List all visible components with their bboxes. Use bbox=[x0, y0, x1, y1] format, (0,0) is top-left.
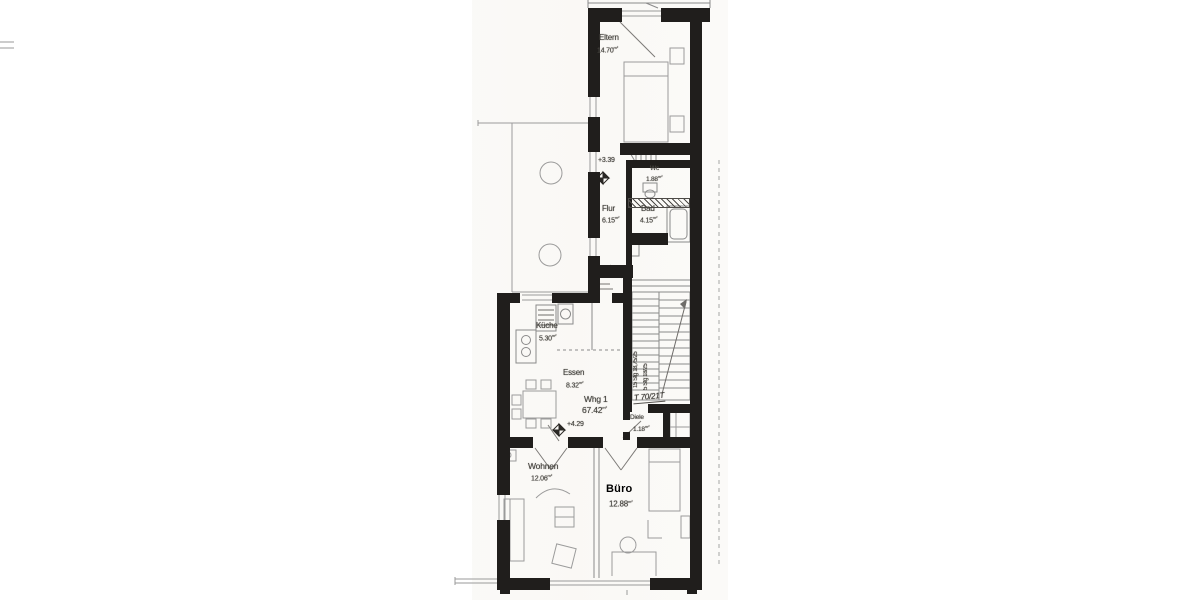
elevation-429: +4.29 bbox=[567, 421, 584, 428]
room-label-bad: Bad bbox=[641, 205, 655, 213]
dining-furniture bbox=[512, 380, 556, 428]
wall-segment bbox=[690, 8, 702, 590]
room-area-eltern: 14.70m² bbox=[597, 46, 618, 54]
hatched-wall bbox=[628, 198, 690, 208]
room-label-flur: Flur bbox=[602, 205, 615, 213]
wall-segment bbox=[623, 278, 632, 412]
wall-segment bbox=[595, 265, 633, 278]
elevation-339: +3.39 bbox=[598, 157, 615, 164]
eltern-furniture bbox=[624, 48, 684, 142]
room-label-kueche: Küche bbox=[536, 322, 558, 330]
room-area-diele: 1.18m² bbox=[633, 425, 650, 434]
room-divider bbox=[594, 448, 599, 578]
stair-note-main: 15 Stg 18,75/25 bbox=[633, 296, 639, 388]
wall-segment bbox=[497, 293, 510, 495]
floor-plan: Eltern 14.70m² Wc 1.88m² Flur 6.15m² Bad… bbox=[0, 0, 1200, 600]
apartment-area: 67.42m² bbox=[582, 406, 607, 415]
room-area-wohnen: 12.06m² bbox=[531, 474, 552, 482]
wall-segment bbox=[588, 172, 600, 238]
wall-segment bbox=[552, 293, 600, 303]
chimney-block bbox=[627, 233, 668, 245]
room-label-essen: Essen bbox=[563, 369, 584, 377]
wall-segment bbox=[637, 437, 690, 448]
wall-segment bbox=[497, 437, 533, 448]
wall-segment bbox=[612, 293, 623, 303]
wall-segment bbox=[623, 432, 630, 440]
wall-segment bbox=[623, 412, 630, 420]
room-area-kueche: 5.30m² bbox=[539, 334, 557, 342]
room-area-bad: 4.15m² bbox=[640, 216, 658, 224]
bath-fixtures bbox=[629, 183, 690, 256]
wall-segment bbox=[661, 8, 710, 22]
room-label-wc: Wc bbox=[650, 166, 659, 173]
wall-segment bbox=[568, 437, 603, 448]
room-label-diele: Diele bbox=[630, 415, 644, 422]
balcony-line bbox=[588, 0, 710, 8]
terrace-outline bbox=[478, 120, 588, 292]
wall-segment bbox=[500, 588, 510, 594]
room-label-buero: Büro bbox=[606, 484, 632, 495]
kitchen-fixtures bbox=[516, 303, 623, 363]
room-area-flur: 6.15m² bbox=[602, 216, 620, 224]
wall-segment bbox=[663, 412, 670, 440]
wall-segment bbox=[588, 117, 600, 152]
stair-note-short: 5 Stg 18/25 bbox=[643, 298, 649, 390]
room-label-eltern: Eltern bbox=[599, 34, 619, 42]
wall-segment bbox=[632, 160, 690, 168]
wall-segment bbox=[620, 143, 690, 155]
wall-segment bbox=[687, 588, 697, 594]
room-area-buero: 12.88m² bbox=[609, 500, 633, 509]
apartment-label: Whg 1 bbox=[584, 395, 608, 404]
wall-segment bbox=[626, 160, 632, 275]
thin-line-layer bbox=[0, 0, 1200, 600]
room-area-essen: 8.32m² bbox=[566, 381, 584, 389]
room-label-wohnen: Wohnen bbox=[528, 462, 558, 471]
room-area-wc: 1.88m² bbox=[646, 175, 663, 184]
buero-furniture bbox=[612, 449, 690, 576]
